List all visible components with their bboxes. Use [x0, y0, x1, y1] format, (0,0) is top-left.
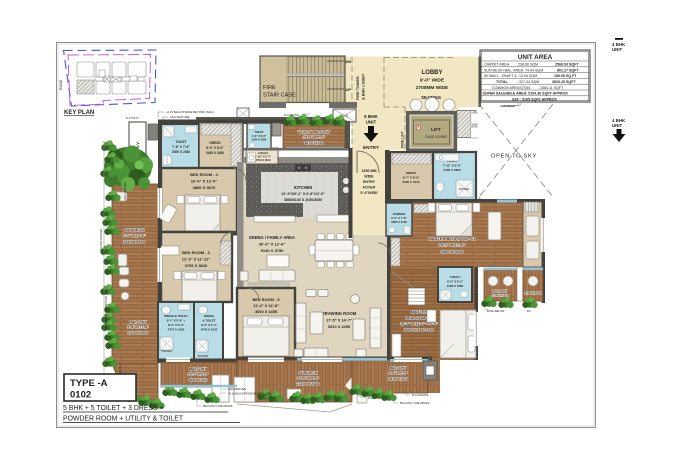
svg-text:33'-6" X 8'-0": 33'-6" X 8'-0"	[297, 377, 319, 381]
svg-text:KITCHEN: KITCHEN	[294, 185, 313, 190]
svg-text:BALCONY: BALCONY	[493, 289, 508, 293]
svg-text:LOBBY: LOBBY	[422, 70, 443, 76]
svg-text:5000 X 3340+600: 5000 X 3340+600	[404, 328, 434, 332]
svg-text:17'-5" X 14'-7": 17'-5" X 14'-7"	[326, 318, 352, 323]
svg-text:3890/6130 X 2030/3650: 3890/6130 X 2030/3650	[284, 198, 322, 202]
svg-text:2490 X 1880: 2490 X 1880	[447, 284, 464, 288]
svg-text:2100 X 1830: 2100 X 1830	[491, 294, 508, 298]
svg-text:8'-2" X 6'-2": 8'-2" X 6'-2"	[447, 280, 464, 284]
svg-text:10200 X 2440: 10200 X 2440	[297, 382, 319, 386]
svg-text:2568.93 SQFT: 2568.93 SQFT	[555, 63, 579, 67]
svg-text:15'-9" X 5'-0": 15'-9" X 5'-0"	[303, 136, 325, 140]
svg-text:8'-0" X 29'-6": 8'-0" X 29'-6"	[122, 233, 146, 238]
svg-text:0102: 0102	[70, 390, 91, 401]
svg-text:& TOILET: & TOILET	[202, 319, 215, 323]
svg-text:DINING / FAMILY AREA: DINING / FAMILY AREA	[249, 235, 295, 240]
svg-text:KEY PLAN: KEY PLAN	[64, 110, 94, 116]
svg-text:DRESS: DRESS	[406, 171, 416, 175]
svg-text:SAG FEATURE: SAG FEATURE	[123, 182, 127, 200]
svg-text:WIDE: WIDE	[364, 175, 374, 179]
svg-text:: 5104.36 SQFT APPROX: : 5104.36 SQFT APPROX	[526, 92, 568, 96]
svg-text:4870 X1530: 4870 X1530	[304, 141, 323, 145]
svg-text:LOGGIA: LOGGIA	[258, 151, 269, 155]
svg-text:2700MM WIDE: 2700MM WIDE	[416, 85, 449, 91]
svg-text:BALCONY: BALCONY	[129, 320, 147, 324]
svg-text:BALCONY LINE ABOVE: BALCONY LINE ABOVE	[203, 404, 233, 408]
svg-text:UP: UP	[346, 87, 352, 92]
svg-text:: 1584.11 SQFT: : 1584.11 SQFT	[538, 86, 564, 90]
svg-text:BUSH BELOW: BUSH BELOW	[487, 309, 505, 313]
svg-text:9'-1" X 5'-0" +: 9'-1" X 5'-0" +	[167, 319, 186, 323]
svg-text:11'-4" X 14'-8": 11'-4" X 14'-8"	[253, 303, 279, 308]
svg-text:1880 X 2135: 1880 X 2135	[391, 220, 407, 224]
svg-text:ROAD: ROAD	[59, 79, 63, 90]
svg-text:TOILET: TOILET	[254, 130, 264, 134]
svg-text:BED ROOM - 4: BED ROOM - 4	[190, 172, 219, 177]
svg-text:HANDRAIL: HANDRAIL	[500, 104, 515, 108]
svg-text:BED ROOM - 3: BED ROOM - 3	[182, 250, 211, 255]
svg-text:: 327.04 SQM: : 327.04 SQM	[517, 80, 539, 84]
svg-text:4580 X 3650: 4580 X 3650	[441, 249, 464, 254]
svg-text:OPEN TO SKY: OPEN TO SKY	[491, 154, 537, 160]
svg-text:+0.15 BALUSTRADE BEYOND (SAG): +0.15 BALUSTRADE BEYOND (SAG)	[228, 392, 272, 396]
svg-text:5'-4" X 11'-4": 5'-4" X 11'-4"	[127, 326, 149, 330]
svg-text:6'-7" X 8'-0": 6'-7" X 8'-0"	[403, 176, 420, 180]
svg-text:1650 MM: 1650 MM	[362, 169, 377, 173]
svg-text:BU.: BU.	[527, 309, 532, 313]
svg-text:: 13.94 SQM: : 13.94 SQM	[517, 74, 537, 78]
svg-text:UNIT: UNIT	[612, 47, 623, 52]
svg-text:MASTER BEDROOM - 01: MASTER BEDROOM - 01	[429, 236, 477, 241]
svg-text:TYPE -A: TYPE -A	[70, 378, 108, 389]
svg-text:7'-6" X 7'-6": 7'-6" X 7'-6"	[172, 145, 190, 149]
svg-text:5 BHK: 5 BHK	[364, 114, 378, 119]
svg-text:3700 X 3640: 3700 X 3640	[185, 263, 208, 268]
svg-text:SHOWER: SHOWER	[161, 350, 172, 353]
svg-text:9'-6" X 5'-0": 9'-6" X 5'-0"	[389, 372, 408, 376]
svg-text:5 BHK + 5 TOILET + 3 DRESS +: 5 BHK + 5 TOILET + 3 DRESS +	[63, 405, 164, 412]
svg-text:TOILET: TOILET	[175, 140, 186, 144]
svg-text:2000 X 2440: 2000 X 2440	[402, 180, 419, 184]
svg-text:16'-5" X 11'-0" + 3'-0": 16'-5" X 11'-0" + 3'-0"	[400, 322, 438, 326]
svg-text:4650 X 1520: 4650 X 1520	[188, 378, 207, 382]
svg-text:BALCONY LINE ABOVE: BALCONY LINE ABOVE	[400, 401, 430, 405]
svg-text:SAG FEATURE: SAG FEATURE	[170, 115, 190, 119]
svg-text:165 BALUSTRADE BEYOND SAG: 165 BALUSTRADE BEYOND SAG	[104, 290, 108, 330]
svg-text:2700 X 1100: 2700 X 1100	[255, 158, 271, 162]
svg-text:UNIT: UNIT	[612, 123, 623, 128]
svg-text:FIRE LIFT: FIRE LIFT	[401, 130, 405, 148]
svg-text:2100 X 1830: 2100 X 1830	[524, 291, 541, 295]
svg-text:4880 X 3670: 4880 X 3670	[193, 185, 216, 190]
svg-text:6'-2"X3'-0": 6'-2"X3'-0"	[126, 116, 139, 120]
svg-text:+0.15 BALUSTRADE BEYOND (SAG): +0.15 BALUSTRADE BEYOND (SAG)	[166, 110, 214, 114]
svg-text:2430 X 1880: 2430 X 1880	[443, 168, 460, 172]
svg-text:TOTAL: TOTAL	[496, 80, 508, 84]
svg-text:4'-0" X 6'-8": 4'-0" X 6'-8"	[252, 134, 267, 138]
svg-text:UNIT: UNIT	[366, 120, 377, 125]
svg-text:UTILITY BALCONY: UTILITY BALCONY	[298, 130, 331, 134]
svg-text:FIRE TOWER: FIRE TOWER	[356, 76, 360, 100]
svg-text:STAIR CASE: STAIR CASE	[263, 93, 296, 99]
svg-text:SUN DECK+BAL. AREA: 74.44 SQM: SUN DECK+BAL. AREA: 74.44 SQM	[484, 68, 543, 72]
svg-text:GLASS RAILING: GLASS RAILING	[99, 229, 103, 250]
svg-text:15'-3" X 5'-0": 15'-3" X 5'-0"	[188, 373, 209, 377]
svg-text:DN: DN	[346, 59, 352, 64]
svg-text:50 WALL , SHAFT &: 50 WALL , SHAFT &	[484, 74, 517, 78]
svg-text:2740 X 1520: 2740 X 1520	[201, 328, 218, 332]
svg-text:2445 X 2430: 2445 X 2430	[206, 151, 224, 155]
svg-text:DRESS & TOILET: DRESS & TOILET	[164, 314, 188, 318]
svg-text:2770 X 1520: 2770 X 1520	[168, 328, 185, 332]
svg-text:1220 X 2030: 1220 X 2030	[252, 138, 267, 142]
svg-text:TOILET: TOILET	[450, 275, 460, 279]
svg-text:801.27 SQFT: 801.27 SQFT	[557, 68, 579, 72]
svg-text:M.S RAILING: M.S RAILING	[412, 393, 428, 397]
svg-text:SUN DECK: SUN DECK	[299, 371, 318, 375]
svg-text:150.05 SQ FT: 150.05 SQ FT	[554, 74, 577, 78]
svg-text:20'-7" X 12'-0": 20'-7" X 12'-0"	[439, 243, 466, 248]
svg-text:8'-10" X 3'-7": 8'-10" X 3'-7"	[255, 155, 272, 159]
svg-text:3520.25 SQFT: 3520.25 SQFT	[552, 80, 576, 84]
svg-text:BED ROOM - 5: BED ROOM - 5	[252, 297, 280, 302]
svg-text:& BHK LOBBY: & BHK LOBBY	[362, 73, 366, 100]
svg-text:5310 X 4455: 5310 X 4455	[328, 324, 351, 329]
svg-text:1630 X 3500: 1630 X 3500	[128, 331, 148, 335]
svg-text:BALCONY: BALCONY	[390, 366, 408, 370]
svg-text:DRESS: DRESS	[210, 141, 221, 145]
svg-text:8'-0" X 3'-0": 8'-0" X 3'-0"	[168, 323, 185, 327]
svg-text:SAG FEATURE: SAG FEATURE	[228, 387, 246, 391]
svg-text:BALCONY: BALCONY	[190, 367, 208, 371]
svg-text:12'-9"/20'-1" X 6'-8"/12'-0": 12'-9"/20'-1" X 6'-8"/12'-0"	[281, 192, 325, 196]
svg-text:SHOWER: SHOWER	[459, 188, 470, 191]
svg-text:12'-3" X 11'-11": 12'-3" X 11'-11"	[182, 257, 210, 262]
svg-text:CARPET AREA: CARPET AREA	[484, 63, 510, 67]
svg-text:SAY : 5105 SQFT APPROX: SAY : 5105 SQFT APPROX	[512, 97, 557, 101]
svg-text:2300 X 2300: 2300 X 2300	[172, 150, 190, 154]
svg-text:: 238.66 SQM: : 238.66 SQM	[516, 63, 538, 67]
svg-text:N.CABLING: N.CABLING	[284, 113, 299, 117]
svg-text:2876 X 1520: 2876 X 1520	[388, 377, 407, 381]
svg-text:9'-0" WIDE: 9'-0" WIDE	[420, 78, 445, 84]
svg-text:DRESS: DRESS	[204, 314, 214, 318]
svg-text:2450 X1950: 2450 X1950	[425, 134, 447, 139]
svg-text:MASTER: MASTER	[411, 310, 427, 314]
svg-text:ENTRY: ENTRY	[363, 180, 376, 184]
svg-text:SHOWER: SHOWER	[198, 355, 209, 358]
svg-text:UNIT AREA: UNIT AREA	[518, 54, 553, 61]
svg-text:COMMON AREAS(T)45: COMMON AREAS(T)45	[492, 86, 530, 90]
svg-text:30'-0" X 12'-6": 30'-0" X 12'-6"	[259, 242, 286, 247]
svg-text:9130 X 3790: 9130 X 3790	[261, 248, 284, 253]
svg-text:POWDER ROOM + UTILITY & TOILET: POWDER ROOM + UTILITY & TOILET	[63, 416, 184, 423]
svg-text:3600 X 4455: 3600 X 4455	[255, 309, 278, 314]
svg-text:8'-0" X 8'-0": 8'-0" X 8'-0"	[206, 146, 224, 150]
svg-text:FOYER: FOYER	[363, 186, 376, 190]
svg-text:9'-0" X 5'-0": 9'-0" X 5'-0"	[201, 323, 218, 327]
svg-text:7'-11" X 6'-2": 7'-11" X 6'-2"	[443, 164, 462, 168]
svg-text:FIRE: FIRE	[263, 85, 276, 91]
svg-text:16'-0" X 12'-0": 16'-0" X 12'-0"	[191, 179, 218, 184]
svg-text:5'-6"WIDE: 5'-6"WIDE	[360, 191, 378, 195]
svg-text:SUN DECK: SUN DECK	[124, 227, 145, 232]
svg-text:DRAWING ROOM: DRAWING ROOM	[322, 311, 357, 316]
svg-text:2440 X 8990: 2440 X 8990	[123, 239, 145, 244]
svg-text:SUPER SALEABLE AREA: SUPER SALEABLE AREA	[483, 92, 527, 96]
svg-text:LIFT: LIFT	[431, 127, 441, 132]
